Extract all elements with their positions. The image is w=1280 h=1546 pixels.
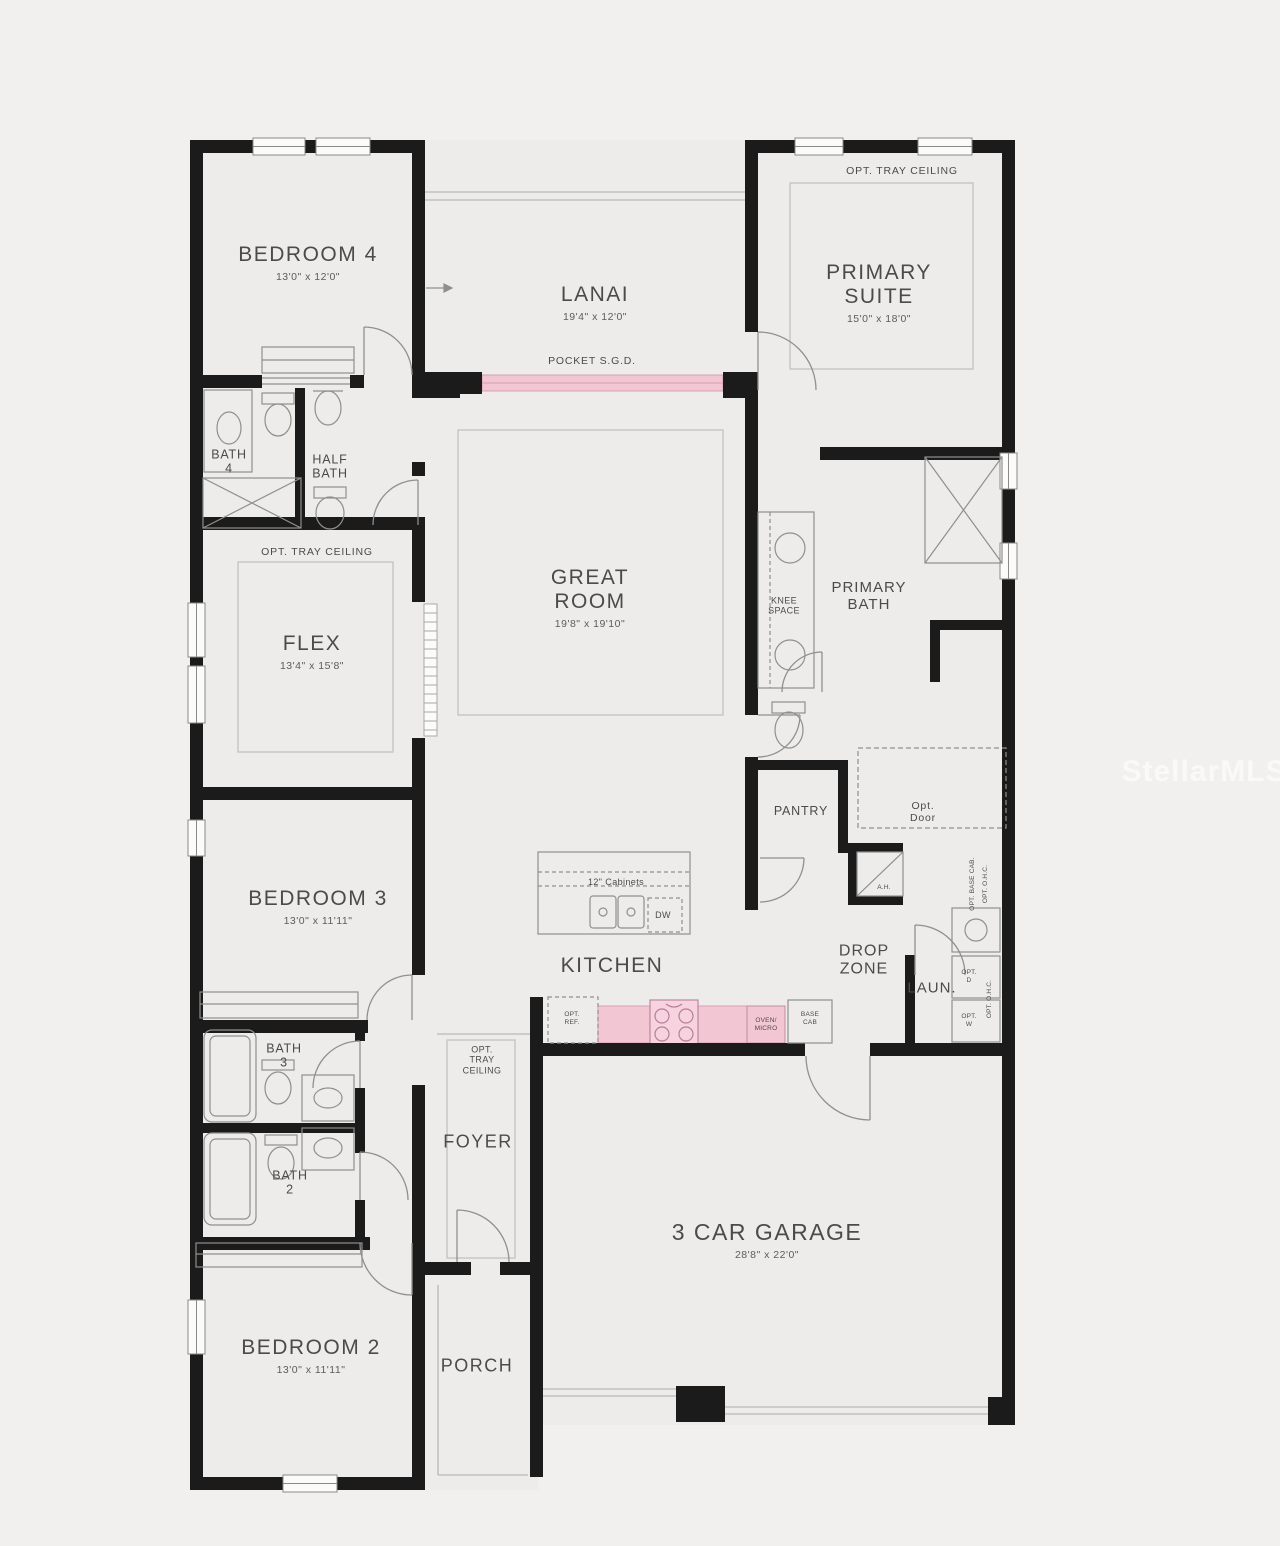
bedroom2-dims: 13'0" x 11'11"	[241, 1364, 381, 1376]
base-cab-line1: BASE	[801, 1011, 819, 1019]
porch-name: PORCH	[441, 1356, 514, 1377]
opt-d-line2: D	[961, 977, 976, 985]
room-label-lanai: LANAI 19'4" x 12'0"	[561, 283, 629, 323]
bath3-line2: 3	[266, 1056, 302, 1070]
room-label-great-room: GREAT ROOM 19'8" x 19'10"	[551, 566, 629, 630]
room-label-pantry: PANTRY	[774, 804, 828, 818]
primary-suite-line2: SUITE	[826, 285, 932, 309]
half-bath-line1: HALF	[312, 453, 348, 467]
foyer-opt-line2: TRAY	[463, 1055, 502, 1065]
drop-line2: ZONE	[839, 961, 889, 979]
flex-opt-tray-label: OPT. TRAY CEILING	[261, 546, 373, 558]
flex-dims: 13'4" x 15'8"	[280, 660, 344, 672]
knee-space-label: KNEE SPACE	[768, 596, 800, 617]
bedroom2-name: BEDROOM 2	[241, 1336, 381, 1360]
knee-line2: SPACE	[768, 606, 800, 616]
primary-bath-line2: BATH	[831, 596, 906, 613]
bedroom4-name: BEDROOM 4	[238, 243, 378, 267]
room-label-bedroom3: BEDROOM 3 13'0" x 11'11"	[248, 887, 388, 927]
room-label-porch: PORCH	[441, 1356, 514, 1377]
opt-ref-line2: REF.	[564, 1019, 579, 1027]
opt-ohc-label-lower: OPT. O.H.C.	[986, 980, 994, 1018]
bedroom3-name: BEDROOM 3	[248, 887, 388, 911]
room-label-garage: 3 CAR GARAGE 28'8" x 22'0"	[672, 1219, 863, 1262]
opt-door-line2: Door	[910, 812, 936, 824]
primary-bath-line1: PRIMARY	[831, 579, 906, 596]
bath4-line1: BATH	[211, 448, 247, 462]
stellar-mls-watermark: StellarMLS	[1121, 755, 1280, 789]
garage-dims: 28'8" x 22'0"	[672, 1249, 863, 1261]
foyer-opt-tray-label: OPT. TRAY CEILING	[463, 1044, 502, 1075]
room-label-primary-suite: PRIMARY SUITE 15'0" x 18'0"	[826, 261, 932, 325]
oven-line2: MICRO	[755, 1025, 778, 1033]
garage-name: 3 CAR GARAGE	[672, 1219, 863, 1245]
room-label-kitchen: KITCHEN	[561, 954, 664, 978]
dishwasher-text: DW	[655, 910, 671, 920]
room-label-primary-bath: PRIMARY BATH	[831, 579, 906, 614]
base-cab-line2: CAB	[801, 1019, 819, 1027]
island-cabinets-text: 12" Cabinets	[588, 877, 644, 887]
room-label-bedroom4: BEDROOM 4 13'0" x 12'0"	[238, 243, 378, 283]
pantry-name: PANTRY	[774, 804, 828, 818]
lanai-dims: 19'4" x 12'0"	[561, 311, 629, 323]
drop-zone-label: DROP ZONE	[839, 943, 889, 980]
foyer-name: FOYER	[443, 1132, 513, 1153]
foyer-opt-line3: CEILING	[463, 1065, 502, 1075]
opt-w-line2: W	[961, 1021, 976, 1029]
oven-micro-label: OVEN/ MICRO	[755, 1017, 778, 1033]
room-label-foyer: FOYER	[443, 1132, 513, 1153]
opt-base-cab-label: OPT. BASE CAB.	[969, 857, 977, 910]
base-cab-label: BASE CAB	[801, 1011, 819, 1027]
oven-line1: OVEN/	[755, 1017, 778, 1025]
kitchen-name: KITCHEN	[561, 954, 664, 978]
bath3-line1: BATH	[266, 1042, 302, 1056]
ah-label: A.H.	[877, 884, 890, 892]
room-label-flex: FLEX 13'4" x 15'8"	[280, 632, 344, 672]
opt-door-label: Opt. Door	[910, 800, 936, 824]
room-label-bath4: BATH 4	[211, 448, 247, 477]
dishwasher-label: DW	[655, 910, 671, 920]
room-label-bath3: BATH 3	[266, 1042, 302, 1071]
opt-washer-label: OPT. W	[961, 1013, 976, 1029]
primary-opt-tray-text: OPT. TRAY CEILING	[846, 165, 958, 177]
knee-line1: KNEE	[768, 596, 800, 606]
half-bath-line2: BATH	[312, 467, 348, 481]
flex-opt-tray-text: OPT. TRAY CEILING	[261, 546, 373, 558]
cased-opening	[424, 604, 437, 736]
drop-line1: DROP	[839, 943, 889, 961]
foyer-opt-line1: OPT.	[463, 1044, 502, 1054]
opt-ohc-label-upper: OPT. O.H.C.	[982, 865, 990, 903]
floor-layer	[190, 140, 1015, 1490]
bedroom4-dims: 13'0" x 12'0"	[238, 271, 378, 283]
opt-ref-label: OPT. REF.	[564, 1011, 579, 1027]
opt-dryer-label: OPT. D	[961, 969, 976, 985]
opt-door-line1: Opt.	[910, 800, 936, 812]
pocket-sgd-label: POCKET S.G.D.	[548, 355, 636, 367]
bath2-line2: 2	[272, 1183, 308, 1197]
primary-suite-dims: 15'0" x 18'0"	[826, 313, 932, 325]
lanai-name: LANAI	[561, 283, 629, 307]
laundry-label: LAUN.	[907, 979, 956, 996]
ah-text: A.H.	[877, 884, 890, 892]
great-room-dims: 19'8" x 19'10"	[551, 618, 629, 630]
room-label-bedroom2: BEDROOM 2 13'0" x 11'11"	[241, 1336, 381, 1376]
laundry-text: LAUN.	[907, 979, 956, 996]
island-cabinets-label: 12" Cabinets	[588, 877, 644, 887]
room-label-half-bath: HALF BATH	[312, 453, 348, 482]
great-room-line1: GREAT	[551, 566, 629, 590]
floorplan-drawing	[0, 0, 1280, 1546]
opt-ohc-text-upper: OPT. O.H.C.	[982, 865, 990, 903]
floorplan-page: BEDROOM 4 13'0" x 12'0" LANAI 19'4" x 12…	[0, 0, 1280, 1546]
great-room-line2: ROOM	[551, 590, 629, 614]
primary-opt-tray-label: OPT. TRAY CEILING	[846, 165, 958, 177]
bath2-line1: BATH	[272, 1169, 308, 1183]
primary-suite-line1: PRIMARY	[826, 261, 932, 285]
opt-base-cab-text: OPT. BASE CAB.	[969, 857, 977, 910]
pocket-sgd-text: POCKET S.G.D.	[548, 355, 636, 367]
flex-name: FLEX	[280, 632, 344, 656]
room-label-bath2: BATH 2	[272, 1169, 308, 1198]
opt-w-line1: OPT.	[961, 1013, 976, 1021]
opt-ohc-text-lower: OPT. O.H.C.	[986, 980, 994, 1018]
opt-d-line1: OPT.	[961, 969, 976, 977]
opt-ref-line1: OPT.	[564, 1011, 579, 1019]
bath4-line2: 4	[211, 462, 247, 476]
bedroom3-dims: 13'0" x 11'11"	[248, 915, 388, 927]
